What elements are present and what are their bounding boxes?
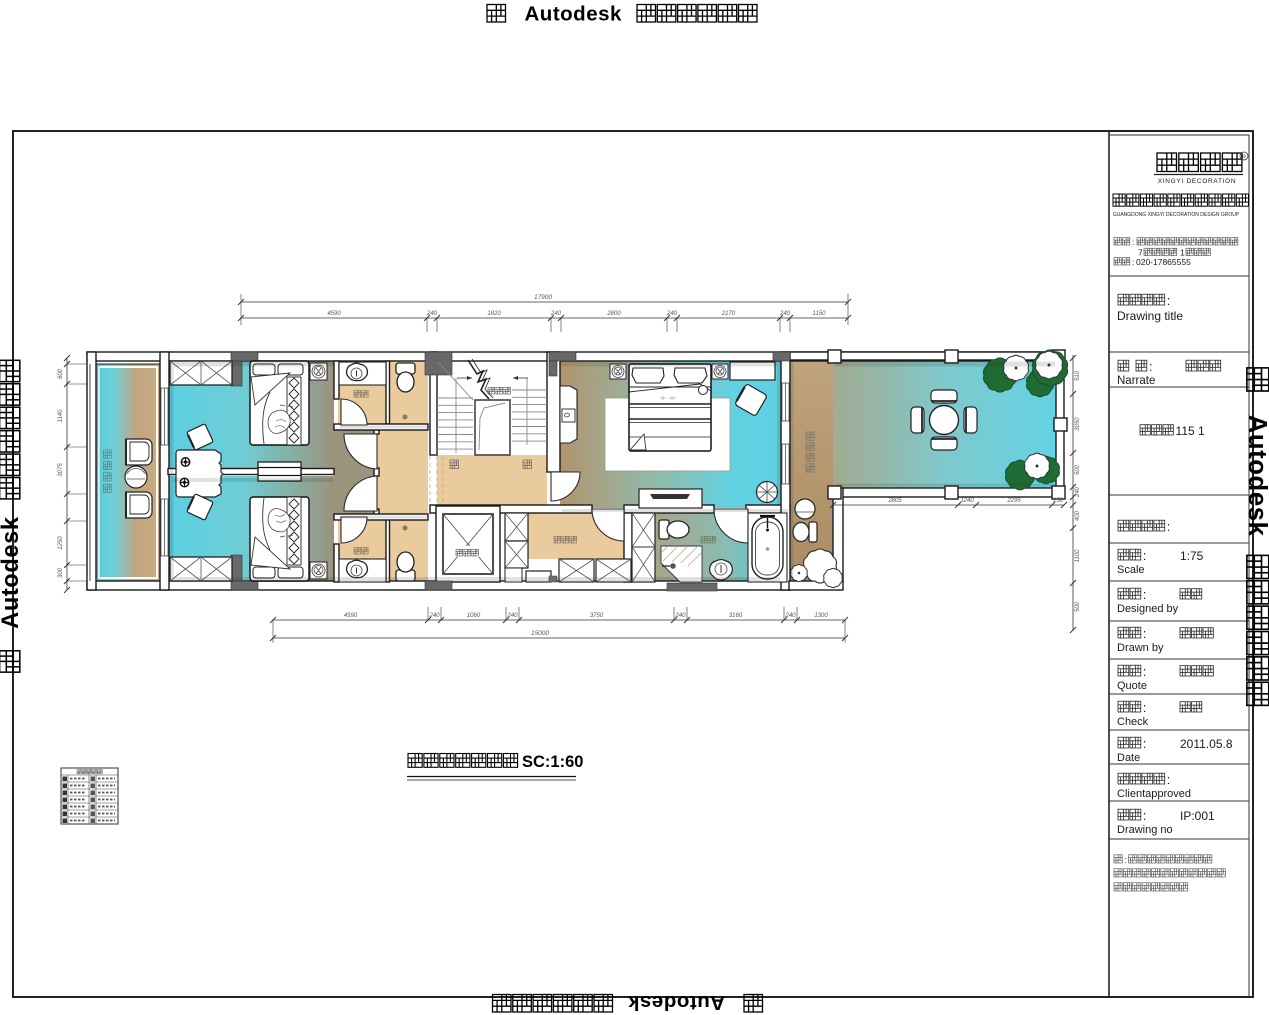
- svg-text::: :: [1143, 588, 1146, 602]
- svg-text:Check: Check: [1117, 716, 1149, 728]
- svg-text:1300: 1300: [814, 613, 828, 619]
- svg-text:Autodesk: Autodesk: [628, 991, 726, 1014]
- svg-text:17900: 17900: [534, 294, 552, 301]
- svg-text:1240: 1240: [960, 498, 974, 504]
- svg-text:2170: 2170: [721, 311, 736, 317]
- svg-text:1150: 1150: [813, 311, 827, 317]
- svg-text:150: 150: [1053, 498, 1064, 504]
- svg-text:3075: 3075: [58, 463, 64, 477]
- svg-text::: :: [1143, 549, 1146, 563]
- svg-text:3160: 3160: [729, 613, 743, 619]
- svg-text:Drawing no: Drawing no: [1117, 824, 1173, 836]
- svg-text::: :: [1143, 701, 1146, 715]
- svg-text::: :: [1167, 520, 1170, 534]
- svg-text:240: 240: [506, 613, 518, 619]
- svg-text:1:75: 1:75: [1180, 549, 1204, 563]
- svg-text:Date: Date: [1117, 752, 1140, 764]
- svg-text:240: 240: [779, 311, 791, 317]
- svg-text:1140: 1140: [58, 409, 64, 423]
- svg-text:GUANGDONG XINGYI DECORATION DE: GUANGDONG XINGYI DECORATION DESIGN GROUP: [1113, 212, 1240, 218]
- svg-text:3050: 3050: [1075, 417, 1081, 431]
- svg-text:7: 7: [1138, 248, 1143, 258]
- svg-text:240: 240: [784, 613, 796, 619]
- svg-text:2295: 2295: [1006, 498, 1021, 504]
- svg-text:2805: 2805: [887, 498, 902, 504]
- svg-text::: :: [1143, 737, 1146, 751]
- svg-text:Autodesk: Autodesk: [0, 516, 24, 629]
- svg-text:Clientapproved: Clientapproved: [1117, 788, 1191, 800]
- svg-text:115 1: 115 1: [1176, 424, 1205, 438]
- svg-text:Scale: Scale: [1117, 564, 1145, 576]
- svg-text::: :: [1143, 665, 1146, 679]
- svg-text:240: 240: [1075, 486, 1081, 498]
- svg-text:15000: 15000: [531, 630, 549, 637]
- svg-text:1820: 1820: [487, 311, 501, 317]
- svg-text:240: 240: [426, 311, 438, 317]
- svg-text::: :: [1132, 237, 1134, 247]
- svg-text:Drawn by: Drawn by: [1117, 642, 1164, 654]
- svg-text:XINGYI DECORATION: XINGYI DECORATION: [1158, 178, 1237, 185]
- svg-text:Drawing title: Drawing title: [1117, 309, 1183, 323]
- svg-text:IP:001: IP:001: [1180, 809, 1215, 823]
- svg-text:020-17865555: 020-17865555: [1136, 257, 1191, 267]
- svg-text::: :: [1149, 360, 1152, 374]
- svg-text:2011.05.8: 2011.05.8: [1180, 737, 1233, 751]
- svg-text::: :: [1167, 773, 1170, 787]
- svg-text::: :: [1132, 257, 1134, 267]
- svg-text:2800: 2800: [606, 311, 621, 317]
- svg-text:Narrate: Narrate: [1117, 375, 1155, 387]
- svg-text:Autodesk: Autodesk: [525, 3, 623, 26]
- svg-text:1250: 1250: [58, 536, 64, 550]
- svg-text:600: 600: [58, 368, 64, 379]
- svg-text:500: 500: [1075, 464, 1081, 475]
- svg-text:240: 240: [674, 613, 686, 619]
- svg-text:Designed by: Designed by: [1117, 603, 1179, 615]
- svg-text:Autodesk: Autodesk: [1243, 415, 1269, 537]
- svg-text:Quote: Quote: [1117, 680, 1147, 692]
- svg-text:240: 240: [550, 311, 562, 317]
- svg-text::: :: [1143, 809, 1146, 823]
- svg-text:1060: 1060: [467, 613, 481, 619]
- svg-text:1100: 1100: [1075, 549, 1081, 563]
- svg-text:4590: 4590: [344, 613, 358, 619]
- svg-text::: :: [1167, 294, 1170, 308]
- svg-text:510: 510: [1075, 370, 1081, 381]
- svg-text:240: 240: [666, 311, 678, 317]
- svg-text::: :: [1143, 627, 1146, 641]
- svg-text:SC:1:60: SC:1:60: [522, 753, 583, 771]
- svg-text:R: R: [1242, 155, 1246, 161]
- svg-text::: :: [1124, 855, 1127, 866]
- svg-text:300: 300: [58, 567, 64, 578]
- svg-text:1: 1: [1180, 248, 1185, 258]
- svg-text:500: 500: [1075, 601, 1081, 612]
- svg-text:400: 400: [1075, 510, 1081, 521]
- svg-text:240: 240: [428, 613, 440, 619]
- svg-text:3750: 3750: [590, 613, 604, 619]
- svg-text:4590: 4590: [327, 311, 341, 317]
